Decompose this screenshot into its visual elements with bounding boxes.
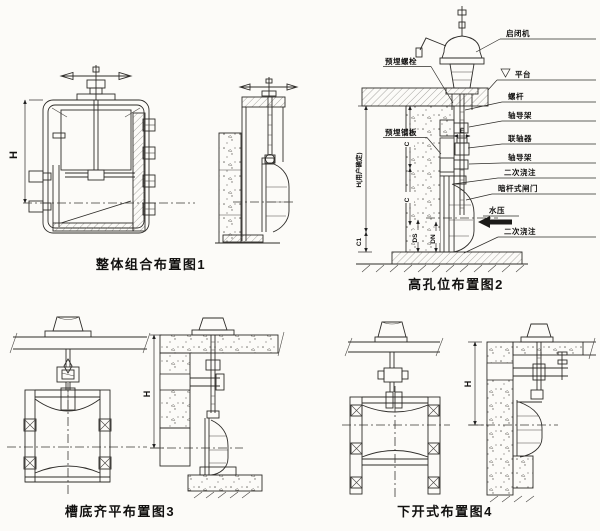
- fig4-side-structure: [487, 324, 596, 495]
- fig4-side-gate: [469, 390, 558, 502]
- technical-drawing-page: H: [0, 0, 600, 531]
- fig2-label-embedded-plate: 预埋钢板: [385, 127, 417, 137]
- fig2-right-callouts: 启闭机 平台 螺杆 轴导架 联轴器 轴导架 二次浇注 暗杆式闸门: [453, 28, 596, 253]
- fig1-side-handwheel: [240, 77, 297, 97]
- fig3-dim-h-label: H: [142, 391, 152, 398]
- fig3-hoist-cone: [10, 317, 150, 353]
- fig2-section-view: H(用户确定) C1 C C DS DN E 预埋螺栓 预埋钢板: [356, 0, 600, 276]
- fig3-gate-frame: [7, 383, 147, 497]
- fig2-dim-c-upper-label: C: [404, 141, 411, 146]
- fig2-dim-dn-label: DN: [430, 234, 437, 244]
- fig4-front-gate: [342, 386, 450, 500]
- fig1-h-dimension: H: [8, 100, 43, 203]
- fig2-dim-c1-label: C1: [356, 237, 363, 246]
- fig1-handwheel: [61, 65, 131, 100]
- fig2-label-screw-stem: 螺杆: [508, 91, 524, 101]
- fig1-side-structure: [219, 97, 285, 243]
- fig2-dim-c-lower-label: C: [404, 197, 411, 202]
- fig2-caption: 高孔位布置图2: [386, 274, 526, 293]
- fig2-dim-h-label: H(用户确定): [354, 152, 363, 187]
- fig1-dim-h-label: H: [8, 151, 20, 159]
- fig2-label-water-pressure: 水压: [489, 205, 505, 215]
- fig4-front-hoist: [345, 322, 443, 392]
- fig2-label-hoist: 启闭机: [506, 28, 530, 38]
- fig2-label-coupling: 联轴器: [508, 133, 532, 143]
- fig2-label-embedded-bolts: 预埋螺栓: [385, 56, 417, 66]
- fig1-front-view: H: [5, 5, 205, 257]
- fig4-dim-h-label: H: [463, 381, 473, 388]
- fig1-side-view: [205, 5, 300, 255]
- fig4-caption: 下开式布置图4: [375, 501, 515, 520]
- fig4-views: H: [306, 316, 598, 504]
- fig2-label-stem-guide-lower: 轴导架: [508, 152, 532, 162]
- fig1-gate-body: [23, 100, 195, 233]
- fig2-label-secondary-grout-lower: 二次浇注: [504, 226, 536, 236]
- fig2-label-platform: 平台: [515, 69, 531, 79]
- fig2-concrete: [356, 88, 528, 272]
- fig4-side-h-dimension: H: [463, 342, 484, 425]
- fig2-label-gate: 暗杆式闸门: [498, 183, 538, 193]
- fig2-label-secondary-grout-upper: 二次浇注: [504, 167, 536, 177]
- fig2-dim-e-label: E: [460, 128, 465, 135]
- fig3-front-view: [5, 315, 155, 501]
- fig2-label-stem-guide-upper: 轴导架: [508, 110, 532, 120]
- fig3-side-view: H: [148, 316, 288, 506]
- fig2-dim-ds-label: DS: [412, 233, 419, 243]
- fig1-caption: 整体组合布置图1: [81, 254, 221, 273]
- fig3-side-structure: [160, 318, 284, 466]
- fig3-caption: 槽底齐平布置图3: [50, 501, 190, 520]
